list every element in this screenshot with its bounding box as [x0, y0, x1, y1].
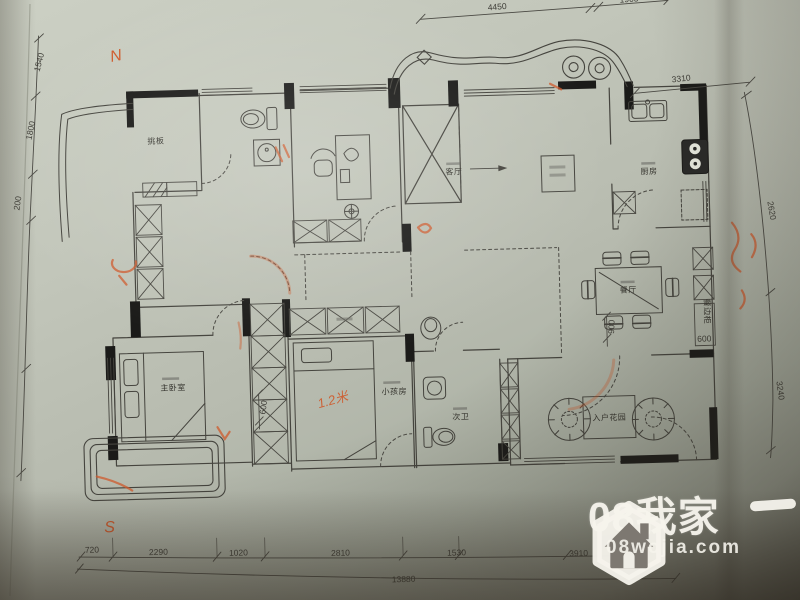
note-bed-size: 1.2米	[316, 388, 352, 411]
label-living-arrow	[498, 165, 507, 171]
dim-bottom-5: 1530	[447, 547, 466, 558]
dim-dining: 900	[606, 319, 617, 334]
label-living-leader	[470, 168, 498, 169]
dim-right-3: 3240	[774, 380, 786, 400]
watermark-site: 08wojia.com	[606, 537, 741, 559]
bath-fixtures	[420, 317, 455, 448]
dim-right-2: 2620	[765, 200, 778, 221]
label-entry-garden: 入户花园	[592, 412, 626, 423]
dim-wardrobe: 600	[257, 399, 269, 415]
dim-right-1: 3310	[671, 72, 691, 84]
label-sideboard: 餐边柜	[702, 299, 713, 325]
label-kitchen: 厨房	[640, 166, 657, 176]
top-balcony	[389, 38, 633, 94]
kitchen-fixtures	[629, 98, 710, 221]
label-dining: 餐厅	[620, 285, 637, 294]
left-balcony-edge	[57, 103, 136, 241]
master-bed	[119, 352, 205, 442]
compass-north: N	[109, 47, 124, 66]
dim-top-1: 4450	[487, 1, 507, 13]
furniture	[113, 95, 717, 465]
label-master: 主卧室	[160, 382, 186, 393]
dim-top-2: 1905	[619, 0, 639, 5]
dim-bottom-2: 2290	[149, 547, 168, 558]
room-labels: 挑板 客厅 厨房 餐厅 主卧室 小孩房 次卫 入户花园 餐边柜	[147, 120, 715, 435]
label-tiaoban: 挑板	[147, 136, 164, 146]
dim-sideboard: 600	[697, 333, 712, 343]
label-kids: 小孩房	[381, 386, 407, 397]
dim-left-1: 1540	[32, 51, 46, 72]
study-desk	[310, 135, 371, 220]
bay-window	[84, 435, 226, 501]
label-living: 客厅	[445, 166, 462, 176]
living-feature-box	[541, 155, 575, 192]
dim-left-2: 1800	[24, 120, 38, 141]
dim-bottom-1: 720	[85, 544, 100, 554]
watermark: 08我家 08wojia.com	[586, 496, 800, 596]
compass-south: S	[104, 519, 115, 536]
dim-bottom-total: 13880	[392, 574, 416, 585]
floor-plan-photo: 4450 1905 3310 2620 3240 1540 1800 200 7…	[0, 0, 800, 600]
dim-bottom-4: 2810	[331, 547, 350, 558]
dim-bottom-3: 1020	[229, 547, 248, 558]
master-bath-fixtures	[241, 107, 281, 166]
dim-left-3: 200	[11, 195, 23, 211]
label-bath: 次卫	[452, 411, 469, 421]
